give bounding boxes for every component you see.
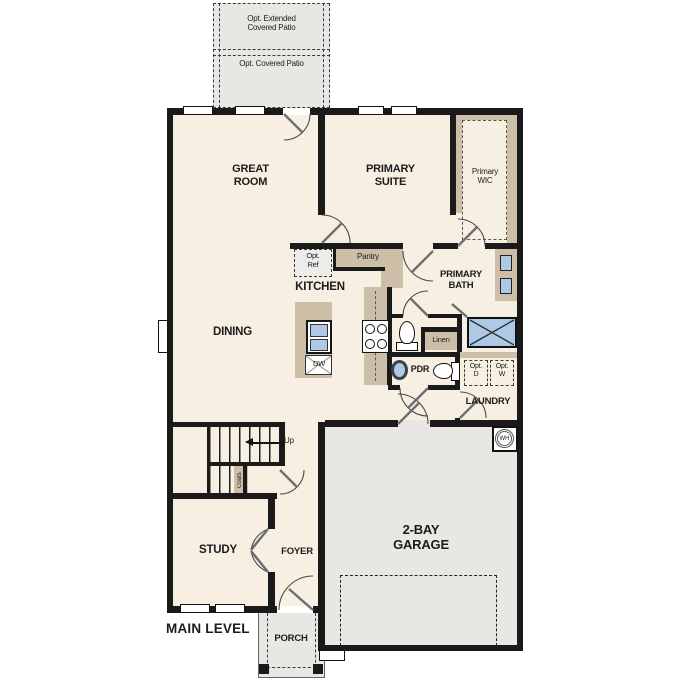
- island-sink-basin-2: [310, 339, 328, 351]
- window-greatroom-2: [235, 106, 265, 115]
- label-primary-wic: Primary WIC: [455, 167, 515, 186]
- laundry-counter-strip: [460, 352, 517, 358]
- powder-sink: [391, 360, 408, 380]
- stairs-direction-arrowhead: [245, 438, 253, 446]
- wall-left: [167, 108, 173, 613]
- window-study-2: [215, 604, 245, 613]
- porch-column-left: [259, 664, 269, 674]
- label-kitchen: KITCHEN: [288, 281, 352, 295]
- porch-column-right: [313, 664, 323, 674]
- wall-shower-left: [457, 314, 462, 352]
- range-burner-1: [365, 324, 375, 334]
- wall-wic-left: [450, 115, 456, 215]
- wall-study-top: [167, 493, 277, 499]
- stairs-lower-flight: [209, 466, 236, 493]
- label-stairs-up: Up: [284, 436, 302, 445]
- label-foyer: FOYER: [277, 546, 317, 557]
- powder-toilet-bowl: [433, 363, 453, 379]
- label-linen: Linen: [425, 336, 457, 345]
- label-dining: DINING: [205, 326, 260, 340]
- wall-stair-top: [173, 422, 285, 427]
- vanity-sink-1: [500, 255, 512, 271]
- water-heater-alcove: WH: [492, 426, 518, 452]
- wall-garage-top-left: [325, 420, 398, 427]
- floor-plan: Opt. Extended Covered Patio Opt. Covered…: [0, 0, 687, 687]
- label-water-heater: WH: [500, 436, 510, 442]
- wall-pantry-left-stub: [333, 248, 336, 268]
- patio-divider-line-1: [213, 49, 330, 50]
- shower: [467, 317, 517, 348]
- window-greatroom-1: [183, 106, 213, 115]
- wall-greatroom-suite: [318, 115, 325, 215]
- garage-side-step: [319, 650, 345, 661]
- label-porch: PORCH: [271, 633, 311, 644]
- range-burner-4: [377, 339, 387, 349]
- label-primary-bath: PRIMARY BATH: [430, 269, 492, 291]
- wall-pdr-bottom-left: [388, 385, 400, 390]
- label-garage: 2-BAY GARAGE: [385, 522, 457, 553]
- water-heater-icon: WH: [495, 429, 514, 448]
- wall-kitchen-top: [290, 243, 403, 249]
- label-opt-ref: Opt. Ref: [294, 252, 332, 270]
- label-opt-extended-patio: Opt. Extended Covered Patio: [223, 14, 320, 33]
- patio-divider-line-2: [213, 55, 330, 56]
- label-coats: Coats: [237, 468, 246, 492]
- label-primary-suite: PRIMARY SUITE: [343, 163, 438, 189]
- wall-study-foyer-lower: [268, 572, 275, 606]
- label-main-level: MAIN LEVEL: [166, 621, 258, 637]
- driveway-outline: [340, 575, 497, 646]
- window-suite-2: [391, 106, 417, 115]
- label-laundry: LAUNDRY: [460, 396, 516, 407]
- wall-toilet-alcove-left: [392, 314, 403, 318]
- window-suite-1: [358, 106, 384, 115]
- label-powder-room: PDR: [407, 364, 433, 375]
- window-dining: [158, 320, 168, 353]
- wall-pantry-bottom: [333, 267, 385, 271]
- label-opt-washer: Opt. W: [490, 363, 514, 380]
- island-sink-basin-1: [310, 324, 328, 337]
- wall-pdr-top: [388, 352, 460, 357]
- label-pantry: Pantry: [337, 252, 399, 261]
- vanity-sink-2: [500, 278, 512, 294]
- label-opt-dryer: Opt. D: [464, 363, 488, 380]
- label-opt-covered-patio: Opt. Covered Patio: [223, 59, 320, 68]
- label-study: STUDY: [192, 544, 244, 558]
- label-great-room: GREAT ROOM: [203, 163, 298, 189]
- wall-garage-left: [318, 422, 325, 651]
- wall-vanity-top: [485, 243, 517, 249]
- wall-garage-bottom: [318, 645, 523, 651]
- range-burner-2: [377, 324, 387, 334]
- wall-study-foyer-upper: [268, 493, 275, 529]
- bath-toilet-bowl: [399, 321, 415, 344]
- stairs-direction-line: [252, 442, 283, 444]
- wall-laundry-stub: [455, 418, 460, 422]
- wall-right: [517, 108, 523, 651]
- wall-linen-top: [421, 327, 461, 332]
- window-study-1: [180, 604, 210, 613]
- range-burner-3: [365, 339, 375, 349]
- wall-suite-bottom: [433, 243, 458, 249]
- wall-stair-tread-edge: [207, 427, 209, 493]
- label-dishwasher: DW: [306, 360, 332, 369]
- pantry-shelf-column: [381, 268, 403, 288]
